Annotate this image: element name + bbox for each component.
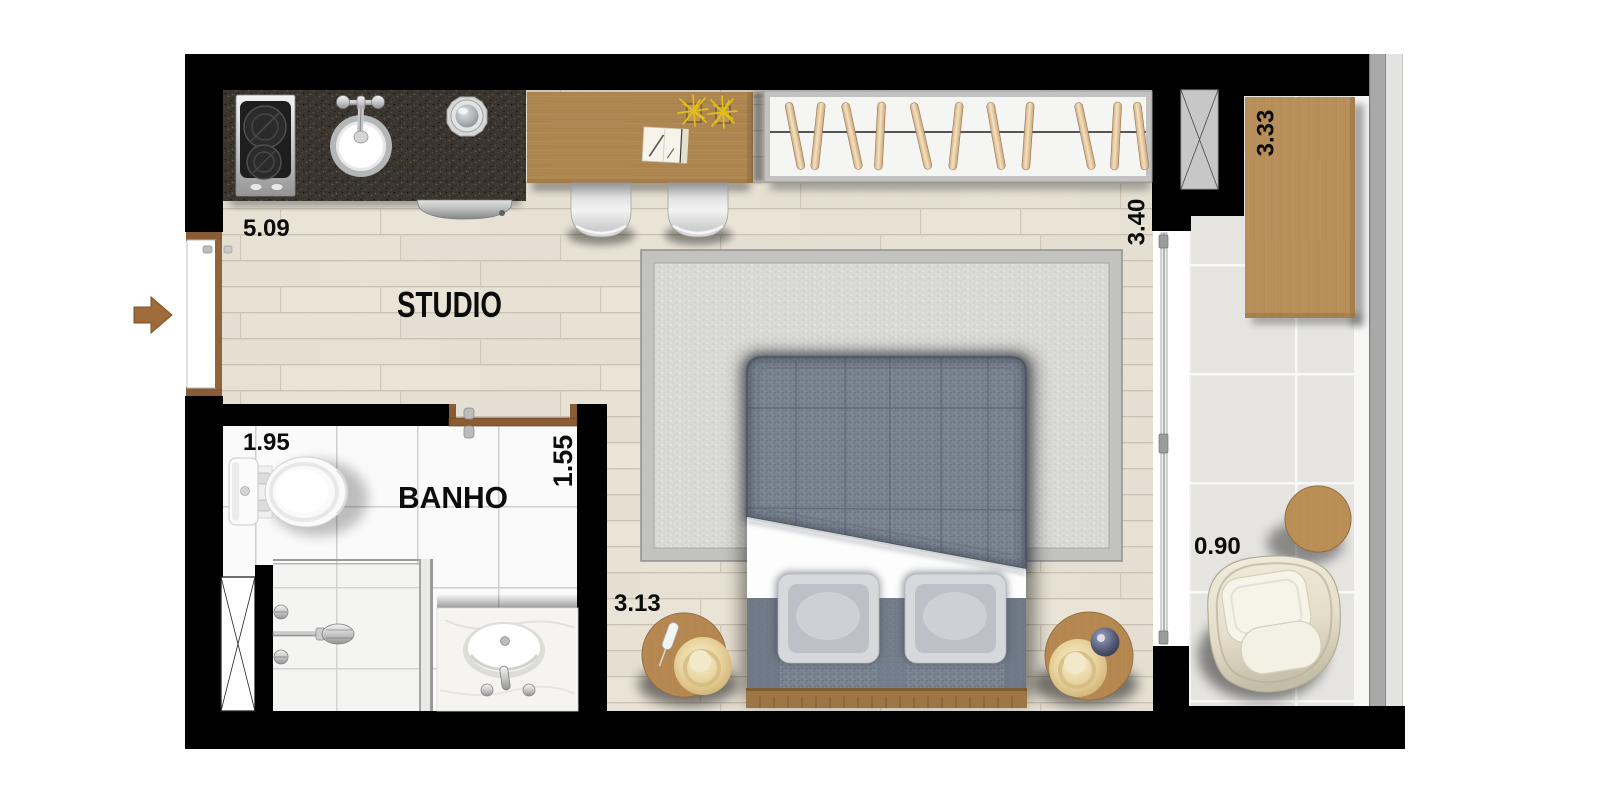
svg-text:5.09: 5.09 — [243, 215, 290, 242]
svg-text:0.90: 0.90 — [1194, 533, 1241, 560]
svg-text:1.55: 1.55 — [548, 435, 578, 488]
svg-text:3.40: 3.40 — [1123, 199, 1150, 246]
svg-text:3.13: 3.13 — [614, 590, 661, 617]
svg-text:STUDIO: STUDIO — [397, 284, 502, 325]
svg-text:3.33: 3.33 — [1252, 110, 1279, 157]
svg-text:1.95: 1.95 — [243, 429, 290, 456]
svg-text:BANHO: BANHO — [398, 480, 508, 515]
